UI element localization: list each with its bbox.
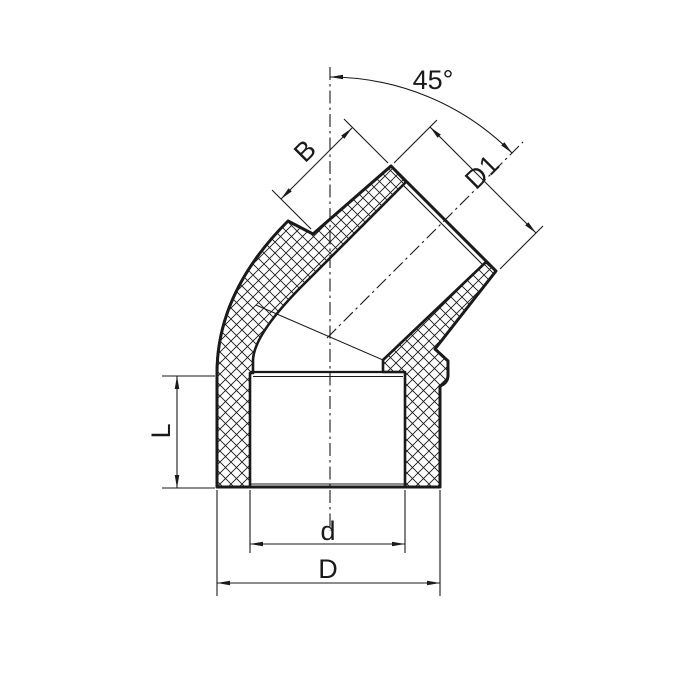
elbow-45deg-technical-drawing: 45° B D1 L d D <box>0 0 700 700</box>
arrowhead <box>430 127 441 138</box>
b-extension-line-2 <box>344 119 388 163</box>
d-inner-label: d <box>320 516 335 546</box>
arrowhead <box>525 222 536 233</box>
d-outer-label: D <box>318 554 338 584</box>
arrowhead <box>250 542 263 547</box>
arrowhead <box>330 75 343 80</box>
arrowhead <box>501 142 512 153</box>
arrowhead <box>217 581 230 586</box>
d1-extension-line-2 <box>500 226 543 269</box>
arrowhead <box>341 128 352 139</box>
part-body <box>217 166 496 487</box>
arrowhead <box>392 542 405 547</box>
b-dimension-line <box>281 128 352 199</box>
arrowhead <box>175 475 180 488</box>
d1-label: D1 <box>459 149 505 195</box>
arrowhead <box>175 376 180 389</box>
arrowhead <box>281 188 292 199</box>
d1-extension-line-1 <box>394 120 437 163</box>
angle-label: 45° <box>413 65 454 95</box>
drawing-canvas: 45° B D1 L d D <box>0 0 700 700</box>
arrowhead <box>427 581 440 586</box>
l-label: L <box>146 423 176 438</box>
